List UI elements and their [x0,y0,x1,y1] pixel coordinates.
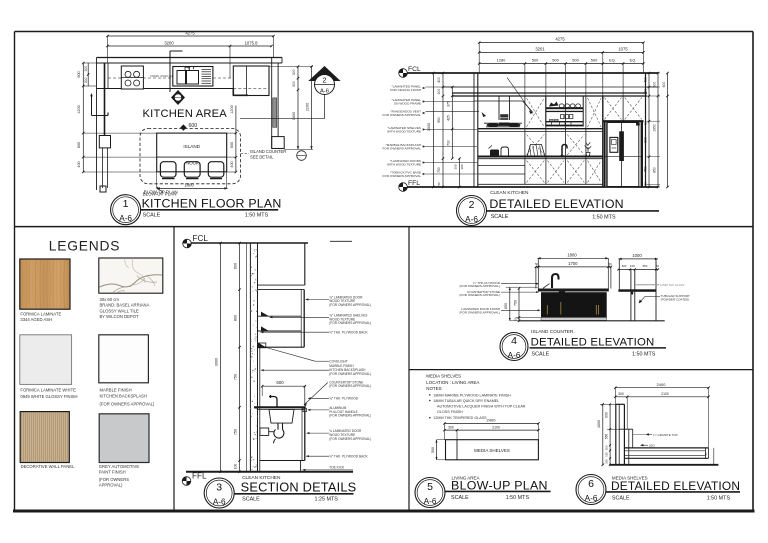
svg-text:2100: 2100 [661,392,669,396]
svg-text:400: 400 [437,77,441,83]
svg-text:PAINT FINISH: PAINT FINISH [99,470,126,475]
svg-text:ON WOOD FRAME: ON WOOD FRAME [394,102,421,106]
svg-text:WITH WOOD TEXTURE: WITH WOOD TEXTURE [387,130,421,134]
svg-text:DETAILED ELEVATION: DETAILED ELEVATION [531,336,655,348]
svg-text:FOR OWNERS APPROVAL: FOR OWNERS APPROVAL [383,147,422,151]
svg-text:100: 100 [233,464,237,470]
svg-text:750: 750 [437,167,441,173]
svg-text:3000: 3000 [214,358,218,366]
svg-text:1280: 1280 [497,58,506,63]
svg-text:(FOR OWNERS APPROVAL): (FOR OWNERS APPROVAL) [459,311,500,315]
svg-text:KITCHEN AREA: KITCHEN AREA [143,108,228,120]
svg-text:300: 300 [605,445,609,450]
svg-text:TOE KICK: TOE KICK [329,466,345,470]
svg-text:300: 300 [605,459,609,464]
svg-text:50: 50 [643,122,647,126]
svg-text:(POWDER COATED): (POWDER COATED) [661,297,690,301]
svg-text:NOTES:: NOTES: [426,386,442,391]
svg-text:A-6: A-6 [213,498,226,507]
svg-text:150: 150 [605,452,609,457]
svg-text:TIMBER UPPER CABS: TIMBER UPPER CABS [150,75,176,78]
svg-text:FFL: FFL [192,472,207,481]
svg-text:(FOR OWNERS APPROVAL): (FOR OWNERS APPROVAL) [459,293,500,297]
svg-text:2100: 2100 [492,425,500,429]
svg-text:CLEAN KITCHEN: CLEAN KITCHEN [490,190,529,196]
svg-text:12MM THK TEMPERED GLASS: 12MM THK TEMPERED GLASS [433,416,487,420]
svg-text:730: 730 [446,140,450,146]
svg-text:FCL: FCL [408,66,421,73]
svg-text:A-6: A-6 [320,89,329,95]
svg-text:380: 380 [460,164,464,169]
svg-text:ISLAND COUNTER: ISLAND COUNTER [250,149,286,154]
svg-text:SCALE: SCALE [451,495,469,501]
svg-text:1:50 MTS: 1:50 MTS [592,215,616,221]
svg-text:MEDIA SHELVES: MEDIA SHELVES [474,448,510,453]
svg-text:300: 300 [622,264,627,268]
svg-text:300: 300 [84,77,88,83]
svg-text:950: 950 [437,117,441,123]
svg-text:2: 2 [469,199,475,211]
svg-text:18MM TUBULAR QUICK DRY ENAMEL: 18MM TUBULAR QUICK DRY ENAMEL [433,399,499,403]
svg-text:SCALE: SCALE [612,496,630,502]
svg-text:EQ.: EQ. [630,58,637,63]
svg-text:50: 50 [609,262,613,266]
svg-text:4275: 4275 [185,30,195,35]
svg-text:550: 550 [605,434,609,440]
svg-text:300: 300 [448,425,454,429]
svg-text:DECORATIVE WALL PANEL: DECORATIVE WALL PANEL [21,464,75,469]
svg-text:1700: 1700 [568,261,578,266]
svg-text:NOOK: NOOK [186,160,199,165]
svg-text:4275: 4275 [555,37,565,42]
svg-text:SCALE: SCALE [242,497,260,503]
svg-text:1950: 1950 [652,124,656,132]
svg-text:A-6: A-6 [465,215,478,224]
svg-text:375: 375 [446,101,450,107]
svg-text:600: 600 [662,82,666,88]
svg-text:A-6: A-6 [585,494,598,503]
svg-text:DETAILED ELEVATION: DETAILED ELEVATION [489,197,623,211]
svg-text:4: 4 [511,335,517,347]
svg-text:1: 1 [123,198,129,210]
svg-text:FORMICA LAMINATE: FORMICA LAMINATE [20,311,61,316]
svg-text:(FOR OWNERS: (FOR OWNERS [99,477,129,482]
svg-text:GLOSSY WALL TILE: GLOSSY WALL TILE [100,308,140,313]
svg-text:(FOR OWNERS APPROVAL): (FOR OWNERS APPROVAL) [329,372,371,376]
svg-text:MEDIA SHELVES: MEDIA SHELVES [426,374,461,379]
svg-text:1800: 1800 [184,183,194,188]
svg-text:1075.8: 1075.8 [245,40,258,45]
svg-text:1200: 1200 [230,105,234,113]
svg-text:2400: 2400 [487,418,497,423]
svg-text:2400: 2400 [657,382,667,387]
svg-text:(FOR OWNERS APPROVAL): (FOR OWNERS APPROVAL) [329,414,371,418]
svg-text:2200: 2200 [306,103,310,111]
svg-text:COVELIGHT: COVELIGHT [329,359,347,363]
svg-text:0949 WHITE GLOSSY FINISH: 0949 WHITE GLOSSY FINISH [20,394,77,399]
svg-text:425: 425 [446,115,450,121]
svg-text:BLOW-UP PLAN: BLOW-UP PLAN [451,478,548,492]
svg-text:SECTION DETAILS: SECTION DETAILS [241,480,357,495]
svg-text:600: 600 [189,123,198,129]
svg-text:550: 550 [643,264,648,268]
svg-text:300: 300 [292,81,296,87]
svg-text:LOCATION : LIVING AREA: LOCATION : LIVING AREA [426,380,479,385]
svg-text:300: 300 [618,392,624,396]
svg-text:SCALE: SCALE [491,214,509,220]
svg-text:30x 60 cm: 30x 60 cm [100,297,120,302]
svg-text:3200: 3200 [164,40,174,45]
svg-text:600: 600 [605,412,609,418]
svg-text:1:50 MTS: 1:50 MTS [707,496,731,502]
svg-text:FOR OWNERS APPROVAL: FOR OWNERS APPROVAL [383,174,422,178]
svg-text:600: 600 [77,71,81,77]
svg-text:600: 600 [276,380,284,385]
svg-text:1000: 1000 [632,253,642,258]
svg-text:850: 850 [652,167,656,173]
svg-text:GLOSS FINISH: GLOSS FINISH [437,410,463,414]
svg-text:200: 200 [437,89,441,95]
svg-text:1600: 1600 [597,420,601,428]
svg-text:WITH WOOD TEXTURE: WITH WOOD TEXTURE [387,163,421,167]
svg-text:(FOR OWNERS APPROVAL): (FOR OWNERS APPROVAL) [329,321,371,325]
svg-text:KITCHEN FLOOR PLAN: KITCHEN FLOOR PLAN [142,196,282,210]
svg-text:750: 750 [233,374,237,380]
svg-text:A-6: A-6 [508,351,521,360]
svg-text:12MM THK GLASS: 12MM THK GLASS [660,283,684,287]
svg-text:500: 500 [532,58,539,63]
svg-text:(FOR OWNERS APPROVAL): (FOR OWNERS APPROVAL) [329,437,371,441]
svg-text:200: 200 [643,89,647,95]
svg-text:DETAILED ELEVATION: DETAILED ELEVATION [611,479,740,493]
svg-text:FORMICA LAMINATE WHITE: FORMICA LAMINATE WHITE [20,388,76,393]
svg-text:400: 400 [230,161,234,167]
svg-text:600: 600 [77,142,81,148]
svg-text:2: 2 [322,76,326,85]
svg-text:¾″ THK. PLYWOOD: ¾″ THK. PLYWOOD [329,396,359,400]
svg-text:(FOR OWNERS APPROVAL): (FOR OWNERS APPROVAL) [329,303,371,307]
svg-text:(FOR OWNERS APPROVAL): (FOR OWNERS APPROVAL) [329,384,371,388]
svg-text:750: 750 [233,429,237,435]
svg-text:800: 800 [233,315,237,321]
svg-text:850: 850 [504,303,508,309]
svg-text:3344 AGED ASH: 3344 AGED ASH [20,317,52,322]
svg-text:3201: 3201 [535,46,545,51]
svg-text:1800: 1800 [567,252,577,257]
svg-text:500: 500 [431,447,435,453]
svg-text:600: 600 [230,142,234,148]
svg-text:SEE DETAIL: SEE DETAIL [250,155,274,160]
svg-text:APPROVAL): APPROVAL) [99,483,123,488]
svg-text:50: 50 [437,182,441,186]
svg-text:400: 400 [77,161,81,167]
svg-text:3000: 3000 [427,123,431,131]
svg-text:KITCHEN BACKSPLASH: KITCHEN BACKSPLASH [100,393,147,398]
svg-text:A-6: A-6 [424,497,437,506]
svg-text:BRAND: BASEL ARRIANA: BRAND: BASEL ARRIANA [100,303,150,308]
svg-text:500: 500 [572,58,579,63]
svg-text:800: 800 [643,137,647,143]
svg-text:BY WILCON DEPOT: BY WILCON DEPOT [100,314,139,319]
svg-text:FFL: FFL [408,180,420,187]
svg-text:MARBLE FINISH: MARBLE FINISH [100,388,132,393]
svg-text:SCALE: SCALE [532,351,550,357]
svg-text:6: 6 [588,478,594,490]
svg-text:ISLAND: ISLAND [183,144,200,149]
svg-text:400: 400 [643,77,647,83]
svg-text:1075: 1075 [618,46,628,51]
svg-text:FOR OWNERS APPROVAL: FOR OWNERS APPROVAL [383,113,422,117]
svg-text:¾″ GRANITE TOP: ¾″ GRANITE TOP [653,433,678,437]
svg-text:5: 5 [427,481,433,493]
svg-text:1600: 1600 [292,112,296,120]
svg-text:300: 300 [84,66,88,72]
svg-text:LEGENDS: LEGENDS [49,239,121,254]
svg-text:1200: 1200 [77,105,81,113]
svg-text:LED: LED [649,444,656,448]
svg-text:FOR CEILING FINISH: FOR CEILING FINISH [390,88,421,92]
svg-text:A-6: A-6 [119,214,132,223]
svg-text:1:50 MTS: 1:50 MTS [245,213,269,219]
svg-text:350: 350 [454,164,458,169]
svg-text:3: 3 [216,482,222,494]
svg-text:1:25 MTS: 1:25 MTS [315,497,339,503]
svg-text:500: 500 [552,58,559,63]
svg-text:EQ.: EQ. [609,58,616,63]
svg-text:GREY AUTOMOTIVE: GREY AUTOMOTIVE [99,464,140,469]
svg-text:½″ THK. PLYWOOD BACK: ½″ THK. PLYWOOD BACK [329,330,368,334]
svg-text:750: 750 [643,166,647,172]
svg-text:1:50 MTS: 1:50 MTS [506,495,530,501]
svg-text:300: 300 [292,69,296,75]
svg-text:600: 600 [652,82,656,88]
svg-text:AUTOMOTIVE LACQUER FINISH WITH: AUTOMOTIVE LACQUER FINISH WITH TOP CLEAR [437,405,526,409]
svg-text:(FOR OWNERS APPROVAL): (FOR OWNERS APPROVAL) [100,401,155,406]
svg-text:100: 100 [630,264,635,268]
svg-text:ISLAND COUNTER.: ISLAND COUNTER. [531,329,575,335]
svg-text:SCALE: SCALE [143,213,161,219]
svg-text:FCL: FCL [193,234,209,243]
svg-text:(FOR OWNERS APPROVAL): (FOR OWNERS APPROVAL) [459,284,500,288]
svg-text:500: 500 [591,58,598,63]
svg-text:½″ THK. PLYWOOD BACK: ½″ THK. PLYWOOD BACK [329,454,368,458]
svg-text:18MM MARINE PLYWOOD LAMINATE F: 18MM MARINE PLYWOOD LAMINATE FINISH [433,393,511,397]
svg-text:1:50 MTS: 1:50 MTS [632,351,656,357]
svg-text:600: 600 [233,263,237,269]
svg-text:750: 750 [513,300,517,306]
